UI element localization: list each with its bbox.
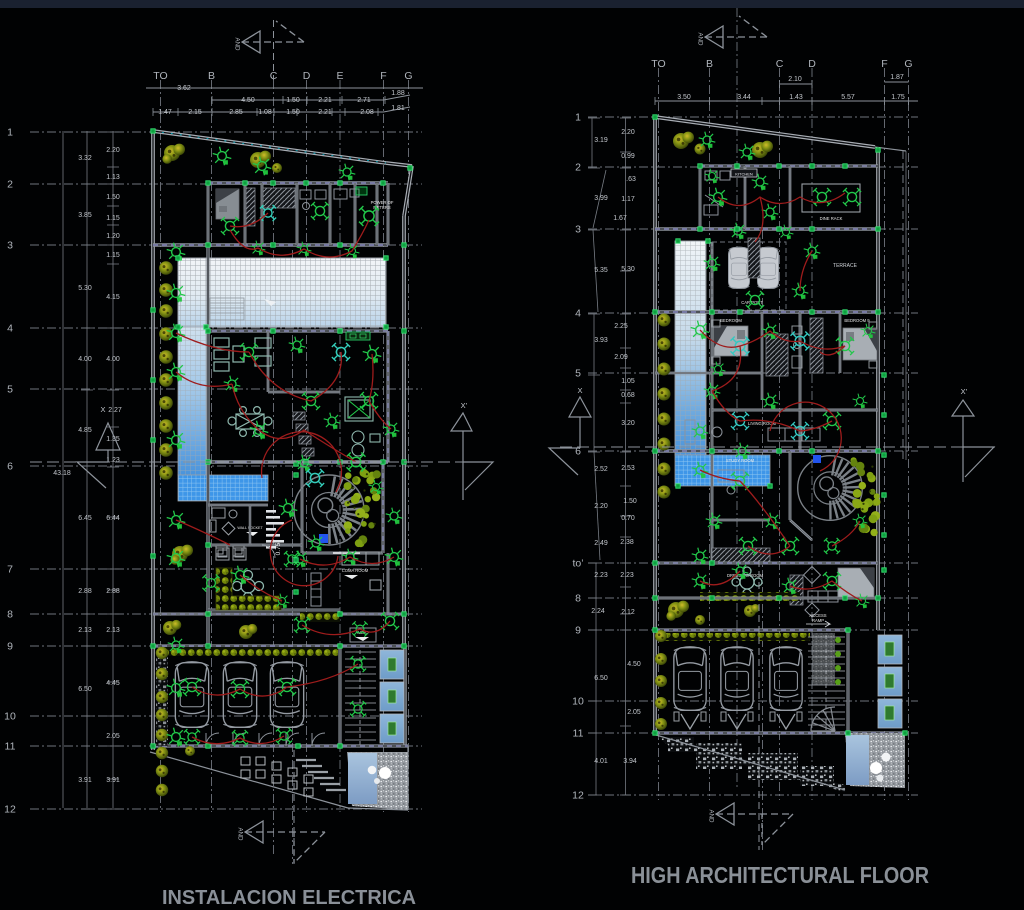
svg-text:X’: X’ [961,387,968,396]
svg-text:2.20: 2.20 [621,129,635,136]
svg-text:1.47: 1.47 [158,109,172,116]
svg-text:AND: AND [708,809,715,823]
svg-text:3.99: 3.99 [594,195,608,202]
svg-text:2.71: 2.71 [357,97,371,104]
svg-text:1.15: 1.15 [106,252,120,259]
svg-text:4.85: 4.85 [78,427,92,434]
svg-text:2.21: 2.21 [318,97,332,104]
svg-text:1.50: 1.50 [286,109,300,116]
svg-text:12: 12 [4,804,16,816]
svg-text:KITCHEN: KITCHEN [735,172,753,177]
svg-text:F: F [380,70,386,82]
svg-text:1.17: 1.17 [621,196,635,203]
svg-text:5.35: 5.35 [594,267,608,274]
svg-text:AND: AND [237,827,244,841]
svg-text:3.50: 3.50 [677,94,691,101]
svg-text:3: 3 [7,240,13,252]
svg-text:4.50: 4.50 [241,97,255,104]
svg-text:1.15: 1.15 [106,215,120,222]
svg-text:B: B [208,70,215,82]
svg-text:3.85: 3.85 [78,212,92,219]
svg-text:2.13: 2.13 [106,627,120,634]
svg-text:2.24: 2.24 [591,608,605,615]
svg-text:4: 4 [575,308,581,320]
svg-text:1.13: 1.13 [106,174,120,181]
svg-text:3.91: 3.91 [78,777,92,784]
svg-text:4.50: 4.50 [627,661,641,668]
svg-text:2.23: 2.23 [594,572,608,579]
svg-text:DINE RACK: DINE RACK [820,216,843,221]
svg-text:2.12: 2.12 [621,609,635,616]
svg-text:X’: X’ [461,401,468,410]
svg-text:.63: .63 [626,176,636,183]
svg-text:3.94: 3.94 [623,758,637,765]
svg-text:1.88: 1.88 [391,90,405,97]
svg-text:3.91: 3.91 [106,777,120,784]
svg-text:C: C [776,58,784,70]
svg-text:9: 9 [7,641,13,653]
svg-text:2.49: 2.49 [594,540,608,547]
svg-text:5: 5 [575,368,581,380]
svg-text:2.20: 2.20 [106,147,120,154]
svg-text:to’: to’ [572,558,583,570]
svg-text:BEDROOM: BEDROOM [720,318,742,323]
svg-text:4.00: 4.00 [78,356,92,363]
svg-text:2.88: 2.88 [106,588,120,595]
svg-text:STUDY ROOM: STUDY ROOM [726,458,755,463]
svg-text:12: 12 [572,790,584,802]
svg-text:1.87: 1.87 [890,74,904,81]
svg-text:0.99: 0.99 [621,153,635,160]
svg-text:2.53: 2.53 [621,465,635,472]
svg-text:5.30: 5.30 [78,285,92,292]
svg-text:8: 8 [575,593,581,605]
svg-text:4.01: 4.01 [594,758,608,765]
svg-text:2.85: 2.85 [229,109,243,116]
svg-text:6.50: 6.50 [78,686,92,693]
svg-text:11: 11 [5,741,16,753]
svg-text:10: 10 [4,711,16,723]
svg-text:BEDROOM 9: BEDROOM 9 [844,318,870,323]
svg-text:2.15: 2.15 [188,109,202,116]
svg-text:AND: AND [697,32,704,46]
svg-text:43.18: 43.18 [53,470,71,477]
svg-text:RAMP: RAMP [812,618,824,623]
svg-text:2.23: 2.23 [620,572,634,579]
svg-text:2.05: 2.05 [106,733,120,740]
svg-text:1.50: 1.50 [623,498,637,505]
svg-text:4.15: 4.15 [106,294,120,301]
svg-text:3: 3 [575,224,581,236]
svg-text:1.05: 1.05 [621,378,635,385]
svg-text:11: 11 [573,728,584,740]
svg-text:6.45: 6.45 [78,515,92,522]
svg-text:X: X [100,405,105,414]
svg-text:2.10: 2.10 [788,76,802,83]
svg-text:E: E [336,70,343,82]
svg-text:10: 10 [572,696,584,708]
svg-text:1.35: 1.35 [106,436,120,443]
svg-text:TO: TO [153,70,167,82]
svg-text:HIGH ARCHITECTURAL FLOOR: HIGH ARCHITECTURAL FLOOR [631,862,929,888]
svg-text:G: G [404,70,412,82]
svg-text:5.57: 5.57 [841,94,855,101]
svg-text:5.30: 5.30 [621,266,635,273]
svg-text:2.88: 2.88 [78,588,92,595]
svg-text:1.67: 1.67 [613,215,627,222]
svg-text:AND: AND [234,37,241,51]
svg-text:3.19: 3.19 [594,137,608,144]
svg-text:1.08: 1.08 [258,109,272,116]
svg-text:TERRACE: TERRACE [833,263,858,269]
svg-text:X: X [577,386,582,395]
svg-text:2: 2 [575,162,581,174]
svg-text:TO: TO [651,58,665,70]
svg-text:4.45: 4.45 [106,680,120,687]
svg-text:2.08: 2.08 [360,109,374,116]
svg-text:8: 8 [7,609,13,621]
svg-text:2.13: 2.13 [78,627,92,634]
svg-text:6: 6 [7,461,13,473]
svg-text:2.52: 2.52 [594,466,608,473]
svg-text:3.62: 3.62 [177,85,191,92]
svg-text:1: 1 [7,127,13,139]
svg-text:1.50: 1.50 [106,194,120,201]
svg-text:4.00: 4.00 [106,356,120,363]
svg-text:0.70: 0.70 [621,515,635,522]
svg-text:6.50: 6.50 [594,675,608,682]
svg-text:G: G [904,58,912,70]
svg-text:6.44: 6.44 [106,515,120,522]
svg-text:7: 7 [7,564,13,576]
svg-text:B: B [706,58,713,70]
svg-text:1.20: 1.20 [106,233,120,240]
svg-text:1: 1 [575,112,581,124]
svg-text:3.93: 3.93 [594,337,608,344]
svg-text:0.68: 0.68 [621,392,635,399]
svg-text:F: F [881,58,887,70]
svg-text:5: 5 [7,384,13,396]
svg-text:INSTALACION ELECTRICA: INSTALACION ELECTRICA [162,886,416,909]
svg-text:1.43: 1.43 [789,94,803,101]
svg-text:3.44: 3.44 [737,94,751,101]
svg-text:0.75: 0.75 [275,542,282,555]
svg-text:1.50: 1.50 [286,97,300,104]
svg-text:2: 2 [7,179,13,191]
svg-text:1.81: 1.81 [391,105,405,112]
svg-text:2.21: 2.21 [318,109,332,116]
svg-text:2.20: 2.20 [594,503,608,510]
svg-text:3.20: 3.20 [621,420,635,427]
svg-text:3.32: 3.32 [78,155,92,162]
svg-text:4: 4 [7,323,13,335]
svg-text:D: D [808,58,816,70]
svg-text:COMA ROOM: COMA ROOM [342,568,369,573]
svg-text:2.09: 2.09 [614,354,628,361]
svg-text:2.38: 2.38 [620,539,634,546]
svg-text:2.05: 2.05 [627,709,641,716]
svg-text:2.25: 2.25 [614,323,628,330]
svg-text:2.27: 2.27 [108,407,122,414]
svg-text:1.75: 1.75 [891,94,905,101]
svg-text:9: 9 [575,625,581,637]
svg-text:D: D [303,70,311,82]
